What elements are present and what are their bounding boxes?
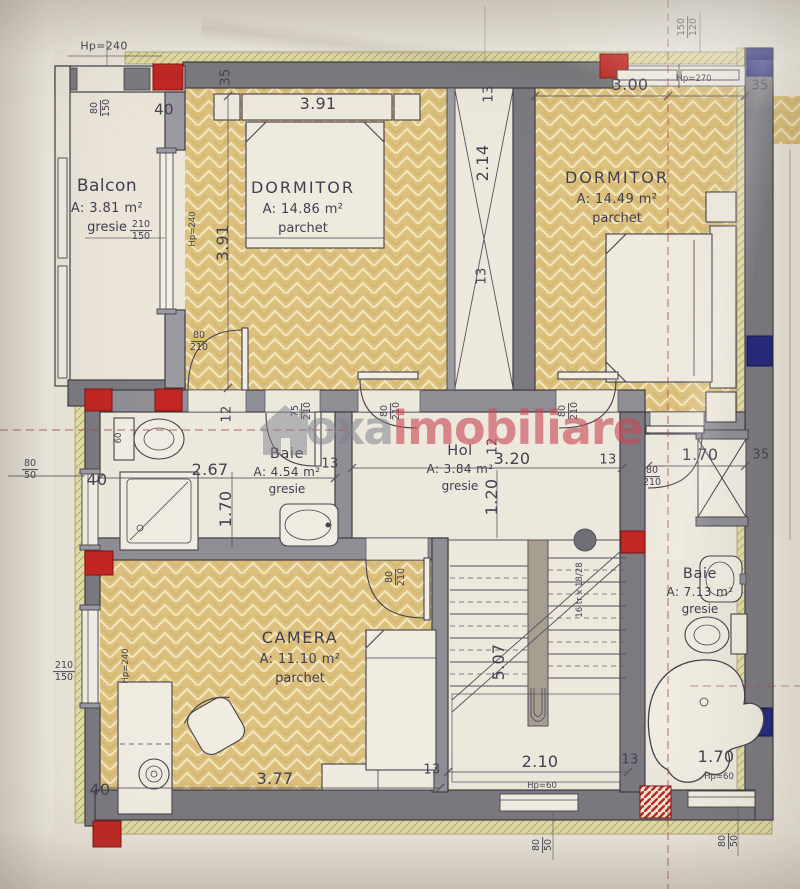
room-floor: gresie [667, 602, 734, 616]
door-80-210-hol-left: 80210 [379, 402, 403, 420]
room-floor: parchet [251, 221, 355, 236]
door-80-210-dormitor1: 80210 [190, 330, 208, 354]
room-name: Balcon [71, 176, 143, 196]
wall-mark-13-camera: 13 [423, 764, 440, 777]
wall-mark-40-bottom: 40 [90, 782, 111, 798]
wall-mark-12-hol: 12 [487, 437, 500, 454]
dim-hol-depth: 1.20 [484, 479, 500, 516]
room-name: Baie [667, 566, 734, 582]
room-floor: parchet [565, 211, 669, 226]
door-hol-right-leaf [558, 372, 618, 379]
room-floor: parchet [260, 671, 341, 686]
door-hol-left-leaf [358, 372, 418, 379]
wall-mark-35-top-left: 35 [220, 68, 233, 85]
room-area: A: 14.86 m² [251, 202, 355, 217]
room-name: Baie [254, 446, 321, 462]
hp-label-60-right: Hp=60 [704, 773, 734, 782]
door-80-210-baie2: 80210 [643, 465, 661, 489]
dim-baie1-width: 2.67 [192, 462, 229, 478]
room-label-baie2: Baie A: 7.13 m² gresie [667, 566, 734, 616]
room-area: A: 3.84 m² [427, 462, 494, 476]
dim-stair-width: 2.10 [522, 754, 559, 770]
wall-mark-13-shaft-bottom: 13 [476, 267, 489, 284]
window-80-50-bottom-left: 8050 [531, 837, 555, 853]
room-area: A: 3.81 m² [71, 201, 143, 216]
door-75-210-baie1: 75210 [290, 402, 314, 420]
room-label-baie1: Baie A: 4.54 m² gresie [254, 446, 321, 496]
wall-mark-35-right: 35 [752, 449, 769, 462]
toilet2-tank-icon [731, 614, 747, 654]
room-floor: gresie [254, 482, 321, 496]
hp-label-balcony: Hp=240 [189, 211, 198, 246]
toilet-bowl-icon [134, 419, 184, 459]
window-80-150: 80150 [89, 99, 113, 117]
room-name: CAMERA [260, 628, 341, 647]
hp-label-camera: Hp=240 [122, 648, 131, 683]
room-name: DORMITOR [251, 178, 355, 197]
hp-label-60-left: Hp=60 [527, 782, 557, 791]
hp-label-270: Hp=270 [676, 75, 711, 84]
window-150-120: 150120 [676, 16, 700, 38]
dim-dormitor1-depth: 3.91 [215, 225, 231, 262]
dim-stair-flight: 5.07 [491, 644, 507, 681]
dim-baie2-width-top: 1.70 [682, 447, 719, 463]
toilet2-bowl-icon [685, 617, 729, 653]
wall-mark-13-shaft-top: 13 [483, 85, 496, 102]
room-area: A: 11.10 m² [260, 652, 341, 667]
wall-mark-35-top-right: 35 [751, 80, 768, 93]
dim-shaft-height: 2.14 [475, 145, 491, 182]
window-80-50-bottom-right: 8050 [717, 833, 741, 849]
wall-mark-13-hol-right: 13 [599, 454, 616, 467]
wall-mark-13-hol-left: 13 [321, 458, 338, 471]
door-dormitor1-leaf [242, 328, 248, 390]
room-area: A: 4.54 m² [254, 465, 321, 479]
stair-note: 16 tr x 18/28 [576, 562, 585, 617]
wall-mark-13-stairs: 13 [621, 754, 638, 767]
bed-camera-icon [366, 630, 436, 770]
door-80-210-hol-right: 80210 [557, 402, 581, 420]
hp-label-top: Hp=240 [80, 41, 127, 52]
toilet-offset-label: 60 [115, 433, 124, 444]
room-area: A: 14.49 m² [565, 192, 669, 207]
door-camera-leaf [424, 558, 430, 620]
room-area: A: 7.13 m² [667, 585, 734, 599]
floorplan-drawing [0, 0, 800, 889]
room-label-dormitor2: DORMITOR A: 14.49 m² parchet [565, 168, 669, 226]
window-210-150-camera: 210150 [53, 660, 75, 684]
floorplan-photo: Hp=240 80150 40 35 3.91 3.91 Hp=240 2101… [0, 0, 800, 889]
stair-newel [574, 529, 596, 551]
dim-dormitor2-width: 3.00 [612, 77, 649, 93]
dim-baie2-width-bottom: 1.70 [698, 749, 735, 765]
wall-mark-40-top: 40 [154, 103, 174, 118]
room-floor: gresie [71, 220, 143, 235]
dim-camera-width: 3.77 [257, 771, 294, 787]
door-baie2-leaf [646, 426, 704, 433]
wall-mark-40-left: 40 [87, 472, 108, 488]
wall-mark-12-baie1: 12 [221, 405, 234, 422]
window-80-50-left: 8050 [22, 458, 38, 482]
red-hatched-column [640, 786, 671, 818]
dim-baie1-depth: 1.70 [218, 491, 234, 528]
room-label-balcon: Balcon A: 3.81 m² gresie [71, 176, 143, 235]
desk-icon [118, 682, 172, 814]
dim-dormitor1-width: 3.91 [300, 96, 337, 112]
room-name: Hol [427, 443, 494, 459]
door-80-210-camera: 80210 [384, 568, 408, 586]
room-label-camera: CAMERA A: 11.10 m² parchet [260, 628, 341, 686]
room-label-dormitor1: DORMITOR A: 14.86 m² parchet [251, 178, 355, 236]
room-name: DORMITOR [565, 168, 669, 187]
